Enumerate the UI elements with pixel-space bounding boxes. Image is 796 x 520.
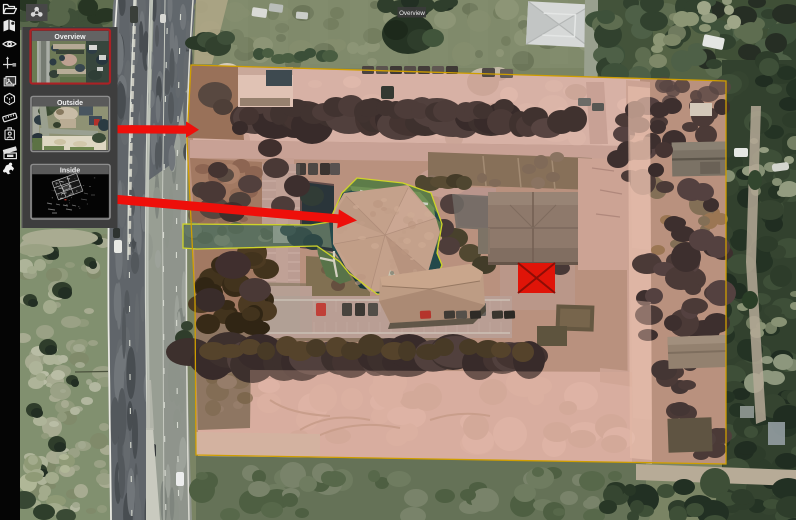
svg-text:Overview: Overview — [399, 10, 425, 17]
svg-text:Overview: Overview — [54, 34, 86, 41]
svg-text:Inside: Inside — [60, 168, 80, 175]
svg-text:Outside: Outside — [57, 100, 83, 107]
